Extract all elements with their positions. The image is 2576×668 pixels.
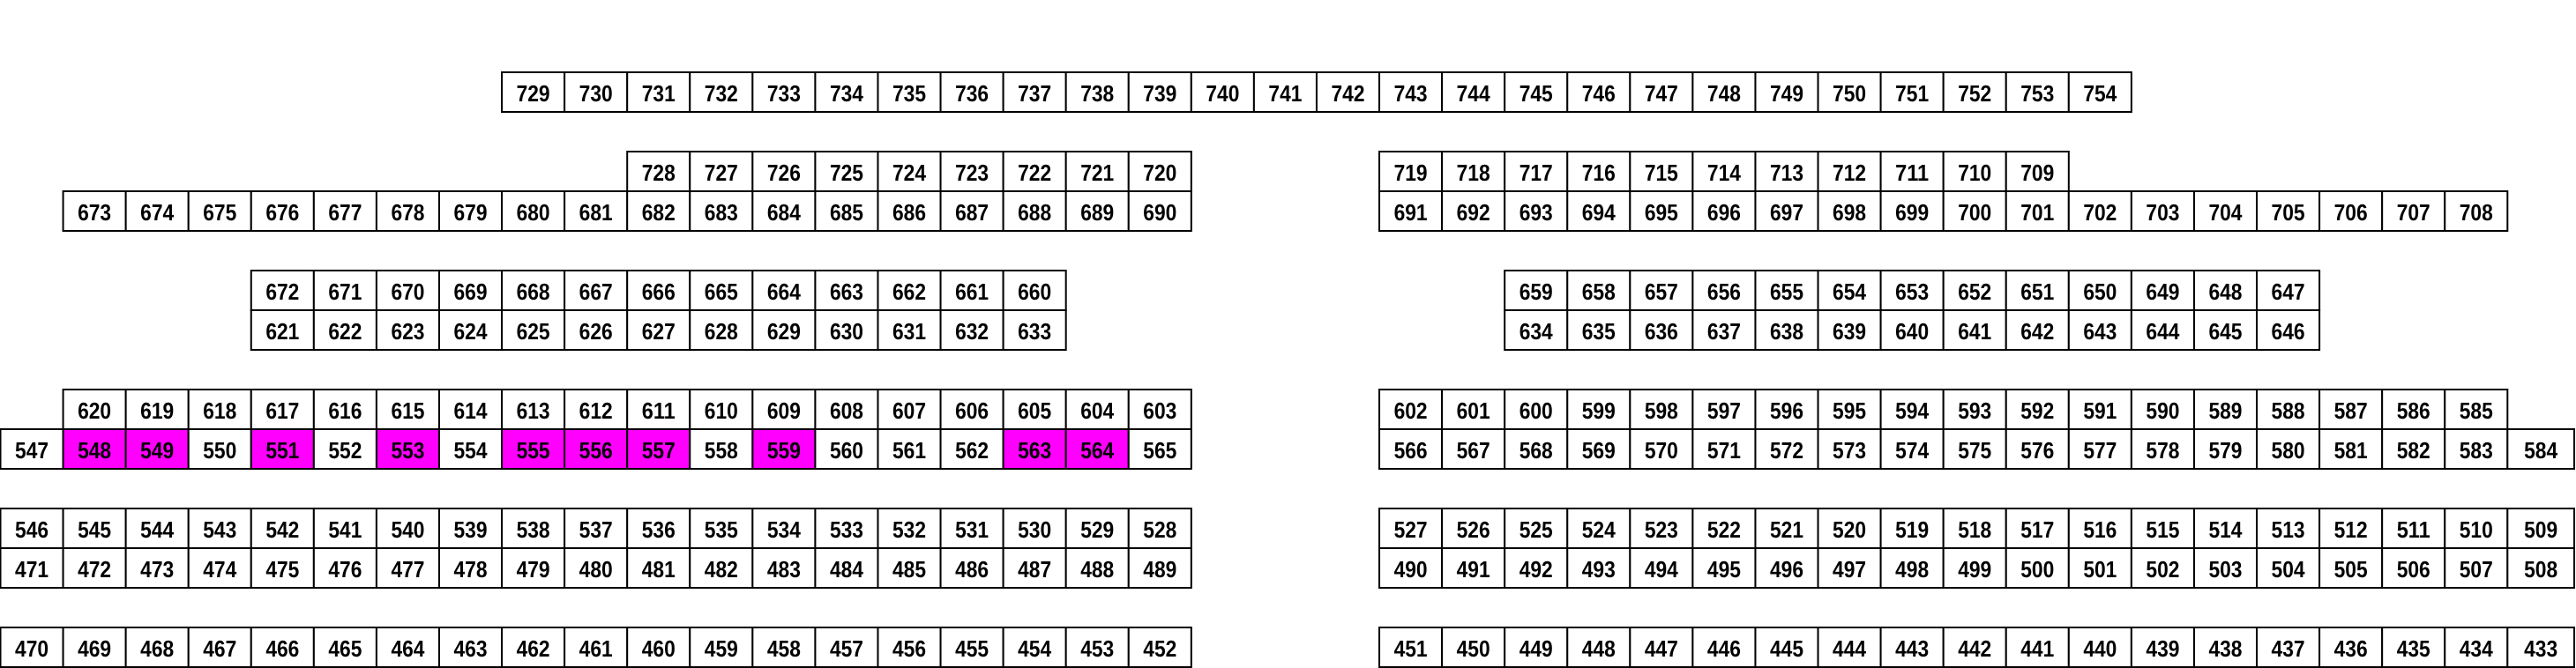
svg-text:614: 614 <box>454 399 489 424</box>
svg-text:625: 625 <box>517 320 550 345</box>
svg-text:526: 526 <box>1457 518 1490 543</box>
svg-text:726: 726 <box>767 161 801 186</box>
svg-text:742: 742 <box>1332 82 1365 107</box>
svg-text:687: 687 <box>955 201 989 226</box>
svg-text:740: 740 <box>1206 82 1239 107</box>
svg-text:559: 559 <box>767 439 801 464</box>
svg-text:697: 697 <box>1770 201 1803 226</box>
svg-text:576: 576 <box>2020 439 2054 464</box>
svg-text:555: 555 <box>517 439 550 464</box>
svg-text:462: 462 <box>517 637 550 662</box>
svg-text:668: 668 <box>517 280 550 305</box>
svg-text:737: 737 <box>1018 82 1051 107</box>
svg-text:457: 457 <box>830 637 863 662</box>
svg-text:586: 586 <box>2397 399 2430 424</box>
svg-text:468: 468 <box>140 637 174 662</box>
svg-text:709: 709 <box>2020 161 2054 186</box>
svg-text:730: 730 <box>579 82 613 107</box>
svg-text:664: 664 <box>767 280 802 305</box>
svg-text:436: 436 <box>2334 637 2368 662</box>
svg-text:754: 754 <box>2083 82 2117 107</box>
svg-text:674: 674 <box>140 201 175 226</box>
svg-text:669: 669 <box>454 280 488 305</box>
svg-text:640: 640 <box>1895 320 1929 345</box>
svg-text:633: 633 <box>1018 320 1051 345</box>
svg-text:619: 619 <box>140 399 174 424</box>
svg-text:500: 500 <box>2020 558 2054 583</box>
svg-text:618: 618 <box>203 399 236 424</box>
svg-text:673: 673 <box>78 201 111 226</box>
svg-text:748: 748 <box>1707 82 1741 107</box>
svg-text:610: 610 <box>705 399 738 424</box>
svg-text:565: 565 <box>1143 439 1176 464</box>
svg-text:478: 478 <box>454 558 488 583</box>
svg-text:583: 583 <box>2460 439 2493 464</box>
svg-text:630: 630 <box>830 320 863 345</box>
svg-text:497: 497 <box>1833 558 1866 583</box>
svg-text:460: 460 <box>642 637 676 662</box>
svg-text:683: 683 <box>705 201 738 226</box>
svg-text:706: 706 <box>2334 201 2368 226</box>
svg-text:550: 550 <box>203 439 236 464</box>
svg-text:607: 607 <box>892 399 926 424</box>
svg-text:713: 713 <box>1770 161 1803 186</box>
svg-text:521: 521 <box>1770 518 1803 543</box>
svg-text:747: 747 <box>1645 82 1678 107</box>
svg-text:558: 558 <box>705 439 738 464</box>
svg-text:597: 597 <box>1707 399 1741 424</box>
svg-text:658: 658 <box>1582 280 1616 305</box>
svg-text:469: 469 <box>78 637 111 662</box>
svg-text:636: 636 <box>1645 320 1678 345</box>
svg-text:655: 655 <box>1770 280 1803 305</box>
svg-text:656: 656 <box>1707 280 1741 305</box>
svg-text:435: 435 <box>2397 637 2430 662</box>
svg-text:553: 553 <box>391 439 424 464</box>
svg-text:613: 613 <box>517 399 550 424</box>
svg-text:622: 622 <box>328 320 362 345</box>
svg-text:492: 492 <box>1519 558 1553 583</box>
svg-text:453: 453 <box>1080 637 1114 662</box>
svg-text:510: 510 <box>2460 518 2493 543</box>
svg-text:451: 451 <box>1394 637 1428 662</box>
svg-text:752: 752 <box>1958 82 1991 107</box>
svg-text:448: 448 <box>1582 637 1616 662</box>
svg-text:739: 739 <box>1143 82 1176 107</box>
svg-text:505: 505 <box>2334 558 2368 583</box>
svg-text:684: 684 <box>767 201 802 226</box>
svg-text:467: 467 <box>203 637 236 662</box>
svg-text:563: 563 <box>1018 439 1051 464</box>
svg-text:456: 456 <box>892 637 926 662</box>
svg-text:464: 464 <box>391 637 425 662</box>
svg-text:501: 501 <box>2083 558 2117 583</box>
svg-text:634: 634 <box>1519 320 1554 345</box>
svg-text:499: 499 <box>1958 558 1991 583</box>
svg-text:548: 548 <box>78 439 111 464</box>
svg-text:485: 485 <box>892 558 926 583</box>
svg-text:691: 691 <box>1394 201 1428 226</box>
svg-text:672: 672 <box>265 280 299 305</box>
svg-text:734: 734 <box>830 82 864 107</box>
svg-text:477: 477 <box>391 558 424 583</box>
svg-text:659: 659 <box>1519 280 1553 305</box>
svg-text:524: 524 <box>1582 518 1617 543</box>
svg-text:458: 458 <box>767 637 801 662</box>
svg-text:495: 495 <box>1707 558 1741 583</box>
svg-text:680: 680 <box>517 201 550 226</box>
svg-text:570: 570 <box>1645 439 1678 464</box>
svg-text:482: 482 <box>705 558 738 583</box>
svg-text:749: 749 <box>1770 82 1803 107</box>
svg-text:513: 513 <box>2272 518 2305 543</box>
svg-text:541: 541 <box>328 518 362 543</box>
svg-text:547: 547 <box>15 439 49 464</box>
svg-text:444: 444 <box>1833 637 1867 662</box>
svg-text:476: 476 <box>328 558 362 583</box>
svg-text:718: 718 <box>1457 161 1490 186</box>
svg-text:702: 702 <box>2083 201 2117 226</box>
svg-text:711: 711 <box>1895 161 1929 186</box>
svg-text:710: 710 <box>1958 161 1991 186</box>
svg-text:491: 491 <box>1457 558 1490 583</box>
svg-text:514: 514 <box>2208 518 2243 543</box>
svg-text:642: 642 <box>2020 320 2054 345</box>
svg-text:628: 628 <box>705 320 738 345</box>
svg-text:649: 649 <box>2146 280 2179 305</box>
svg-text:539: 539 <box>454 518 488 543</box>
svg-text:439: 439 <box>2146 637 2179 662</box>
svg-text:677: 677 <box>328 201 362 226</box>
svg-text:603: 603 <box>1143 399 1176 424</box>
svg-text:662: 662 <box>892 280 926 305</box>
svg-text:611: 611 <box>642 399 676 424</box>
svg-text:493: 493 <box>1582 558 1616 583</box>
svg-text:549: 549 <box>140 439 174 464</box>
svg-text:546: 546 <box>15 518 49 543</box>
svg-text:703: 703 <box>2146 201 2179 226</box>
svg-text:650: 650 <box>2083 280 2117 305</box>
svg-text:707: 707 <box>2397 201 2430 226</box>
svg-text:595: 595 <box>1833 399 1866 424</box>
svg-text:455: 455 <box>955 637 989 662</box>
svg-text:698: 698 <box>1833 201 1866 226</box>
svg-text:534: 534 <box>767 518 802 543</box>
svg-text:571: 571 <box>1707 439 1741 464</box>
svg-text:753: 753 <box>2020 82 2054 107</box>
svg-text:463: 463 <box>454 637 488 662</box>
svg-text:573: 573 <box>1833 439 1866 464</box>
svg-text:728: 728 <box>642 161 676 186</box>
svg-text:481: 481 <box>642 558 676 583</box>
svg-text:671: 671 <box>328 280 362 305</box>
svg-text:653: 653 <box>1895 280 1929 305</box>
svg-text:437: 437 <box>2272 637 2305 662</box>
svg-text:551: 551 <box>265 439 299 464</box>
svg-text:554: 554 <box>454 439 489 464</box>
svg-text:637: 637 <box>1707 320 1741 345</box>
svg-text:479: 479 <box>517 558 550 583</box>
svg-text:498: 498 <box>1895 558 1929 583</box>
svg-text:442: 442 <box>1958 637 1991 662</box>
svg-text:577: 577 <box>2083 439 2117 464</box>
svg-text:512: 512 <box>2334 518 2368 543</box>
svg-text:466: 466 <box>265 637 299 662</box>
svg-text:733: 733 <box>767 82 801 107</box>
svg-text:624: 624 <box>454 320 489 345</box>
svg-text:490: 490 <box>1394 558 1428 583</box>
svg-text:511: 511 <box>2397 518 2430 543</box>
svg-text:516: 516 <box>2083 518 2117 543</box>
svg-text:638: 638 <box>1770 320 1803 345</box>
svg-text:594: 594 <box>1895 399 1930 424</box>
svg-text:434: 434 <box>2460 637 2494 662</box>
svg-text:599: 599 <box>1582 399 1616 424</box>
svg-text:715: 715 <box>1645 161 1678 186</box>
svg-text:530: 530 <box>1018 518 1051 543</box>
svg-text:581: 581 <box>2334 439 2368 464</box>
svg-text:454: 454 <box>1018 637 1052 662</box>
svg-text:465: 465 <box>328 637 362 662</box>
svg-text:661: 661 <box>955 280 989 305</box>
svg-text:690: 690 <box>1143 201 1176 226</box>
svg-text:515: 515 <box>2146 518 2179 543</box>
svg-text:598: 598 <box>1645 399 1678 424</box>
svg-text:738: 738 <box>1080 82 1114 107</box>
svg-text:693: 693 <box>1519 201 1553 226</box>
svg-text:652: 652 <box>1958 280 1991 305</box>
svg-text:519: 519 <box>1895 518 1929 543</box>
svg-text:700: 700 <box>1958 201 1991 226</box>
svg-text:590: 590 <box>2146 399 2179 424</box>
svg-text:525: 525 <box>1519 518 1553 543</box>
svg-text:627: 627 <box>642 320 676 345</box>
svg-text:635: 635 <box>1582 320 1616 345</box>
svg-text:443: 443 <box>1895 637 1929 662</box>
svg-text:615: 615 <box>391 399 424 424</box>
svg-text:645: 645 <box>2208 320 2242 345</box>
svg-text:480: 480 <box>579 558 613 583</box>
svg-text:438: 438 <box>2208 637 2242 662</box>
svg-text:579: 579 <box>2208 439 2242 464</box>
svg-text:449: 449 <box>1519 637 1553 662</box>
svg-text:523: 523 <box>1645 518 1678 543</box>
svg-text:596: 596 <box>1770 399 1803 424</box>
svg-text:722: 722 <box>1018 161 1051 186</box>
svg-text:564: 564 <box>1080 439 1115 464</box>
svg-text:531: 531 <box>955 518 989 543</box>
svg-text:474: 474 <box>203 558 237 583</box>
svg-text:657: 657 <box>1645 280 1678 305</box>
svg-text:660: 660 <box>1018 280 1051 305</box>
svg-text:502: 502 <box>2146 558 2179 583</box>
svg-text:486: 486 <box>955 558 989 583</box>
svg-text:532: 532 <box>892 518 926 543</box>
svg-text:608: 608 <box>830 399 863 424</box>
svg-text:620: 620 <box>78 399 111 424</box>
svg-text:517: 517 <box>2020 518 2054 543</box>
svg-text:593: 593 <box>1958 399 1991 424</box>
svg-text:582: 582 <box>2397 439 2430 464</box>
svg-text:496: 496 <box>1770 558 1803 583</box>
svg-text:556: 556 <box>579 439 613 464</box>
svg-text:441: 441 <box>2020 637 2054 662</box>
svg-text:688: 688 <box>1018 201 1051 226</box>
svg-text:631: 631 <box>892 320 926 345</box>
svg-text:689: 689 <box>1080 201 1114 226</box>
svg-text:461: 461 <box>579 637 613 662</box>
svg-text:591: 591 <box>2083 399 2117 424</box>
svg-text:578: 578 <box>2146 439 2179 464</box>
svg-text:699: 699 <box>1895 201 1929 226</box>
svg-text:473: 473 <box>140 558 174 583</box>
svg-text:735: 735 <box>892 82 926 107</box>
svg-text:644: 644 <box>2146 320 2180 345</box>
svg-text:708: 708 <box>2460 201 2493 226</box>
svg-text:600: 600 <box>1519 399 1553 424</box>
svg-text:654: 654 <box>1833 280 1867 305</box>
svg-text:670: 670 <box>391 280 424 305</box>
svg-text:536: 536 <box>642 518 676 543</box>
svg-text:701: 701 <box>2020 201 2054 226</box>
svg-text:545: 545 <box>78 518 111 543</box>
svg-text:641: 641 <box>1958 320 1991 345</box>
svg-text:527: 527 <box>1394 518 1428 543</box>
svg-text:729: 729 <box>517 82 550 107</box>
svg-text:716: 716 <box>1582 161 1616 186</box>
svg-text:537: 537 <box>579 518 613 543</box>
svg-text:574: 574 <box>1895 439 1930 464</box>
svg-text:682: 682 <box>642 201 676 226</box>
svg-text:507: 507 <box>2460 558 2493 583</box>
svg-text:520: 520 <box>1833 518 1866 543</box>
svg-text:724: 724 <box>892 161 927 186</box>
svg-text:452: 452 <box>1143 637 1176 662</box>
svg-text:626: 626 <box>579 320 613 345</box>
svg-text:522: 522 <box>1707 518 1741 543</box>
svg-text:651: 651 <box>2020 280 2054 305</box>
svg-text:508: 508 <box>2524 558 2557 583</box>
svg-text:538: 538 <box>517 518 550 543</box>
svg-text:719: 719 <box>1394 161 1428 186</box>
svg-text:721: 721 <box>1080 161 1114 186</box>
svg-text:751: 751 <box>1895 82 1929 107</box>
svg-text:566: 566 <box>1394 439 1428 464</box>
svg-text:720: 720 <box>1143 161 1176 186</box>
svg-text:592: 592 <box>2020 399 2054 424</box>
svg-text:569: 569 <box>1582 439 1616 464</box>
svg-text:667: 667 <box>579 280 613 305</box>
svg-text:686: 686 <box>892 201 926 226</box>
svg-text:588: 588 <box>2272 399 2305 424</box>
svg-text:447: 447 <box>1645 637 1678 662</box>
svg-text:585: 585 <box>2460 399 2493 424</box>
svg-text:666: 666 <box>642 280 676 305</box>
svg-text:647: 647 <box>2272 280 2305 305</box>
svg-text:560: 560 <box>830 439 863 464</box>
svg-text:731: 731 <box>642 82 676 107</box>
svg-text:616: 616 <box>328 399 362 424</box>
svg-text:568: 568 <box>1519 439 1553 464</box>
svg-text:692: 692 <box>1457 201 1490 226</box>
svg-text:612: 612 <box>579 399 613 424</box>
svg-text:705: 705 <box>2272 201 2305 226</box>
svg-text:745: 745 <box>1519 82 1553 107</box>
svg-text:557: 557 <box>642 439 676 464</box>
svg-text:694: 694 <box>1582 201 1617 226</box>
svg-text:587: 587 <box>2334 399 2368 424</box>
svg-text:743: 743 <box>1394 82 1428 107</box>
svg-text:632: 632 <box>955 320 989 345</box>
svg-text:562: 562 <box>955 439 989 464</box>
svg-text:727: 727 <box>705 161 738 186</box>
svg-text:744: 744 <box>1457 82 1491 107</box>
svg-text:602: 602 <box>1394 399 1428 424</box>
svg-text:623: 623 <box>391 320 424 345</box>
svg-text:676: 676 <box>265 201 299 226</box>
svg-text:639: 639 <box>1833 320 1866 345</box>
svg-text:685: 685 <box>830 201 863 226</box>
svg-text:484: 484 <box>830 558 864 583</box>
svg-text:663: 663 <box>830 280 863 305</box>
svg-text:470: 470 <box>15 637 49 662</box>
svg-text:712: 712 <box>1833 161 1866 186</box>
svg-text:533: 533 <box>830 518 863 543</box>
svg-text:489: 489 <box>1143 558 1176 583</box>
svg-text:542: 542 <box>265 518 299 543</box>
svg-text:584: 584 <box>2524 439 2558 464</box>
svg-text:609: 609 <box>767 399 801 424</box>
svg-text:450: 450 <box>1457 637 1490 662</box>
svg-text:475: 475 <box>265 558 299 583</box>
svg-text:445: 445 <box>1770 637 1803 662</box>
svg-text:679: 679 <box>454 201 488 226</box>
svg-text:681: 681 <box>579 201 613 226</box>
svg-text:717: 717 <box>1519 161 1553 186</box>
svg-text:494: 494 <box>1645 558 1679 583</box>
svg-text:741: 741 <box>1268 82 1302 107</box>
svg-text:459: 459 <box>705 637 738 662</box>
svg-text:488: 488 <box>1080 558 1114 583</box>
svg-text:440: 440 <box>2083 637 2117 662</box>
svg-text:678: 678 <box>391 201 424 226</box>
svg-text:750: 750 <box>1833 82 1866 107</box>
svg-text:540: 540 <box>391 518 424 543</box>
svg-text:746: 746 <box>1582 82 1616 107</box>
svg-text:580: 580 <box>2272 439 2305 464</box>
svg-text:665: 665 <box>705 280 738 305</box>
svg-text:487: 487 <box>1018 558 1051 583</box>
svg-text:696: 696 <box>1707 201 1741 226</box>
svg-text:572: 572 <box>1770 439 1803 464</box>
svg-text:605: 605 <box>1018 399 1051 424</box>
svg-text:433: 433 <box>2524 637 2557 662</box>
svg-text:552: 552 <box>328 439 362 464</box>
svg-text:543: 543 <box>203 518 236 543</box>
svg-text:604: 604 <box>1080 399 1115 424</box>
svg-text:561: 561 <box>892 439 926 464</box>
svg-text:518: 518 <box>1958 518 1991 543</box>
svg-text:528: 528 <box>1143 518 1176 543</box>
svg-text:503: 503 <box>2208 558 2242 583</box>
svg-text:646: 646 <box>2272 320 2305 345</box>
svg-text:736: 736 <box>955 82 989 107</box>
svg-text:617: 617 <box>265 399 299 424</box>
svg-text:725: 725 <box>830 161 863 186</box>
svg-text:509: 509 <box>2524 518 2557 543</box>
svg-text:643: 643 <box>2083 320 2117 345</box>
svg-text:606: 606 <box>955 399 989 424</box>
